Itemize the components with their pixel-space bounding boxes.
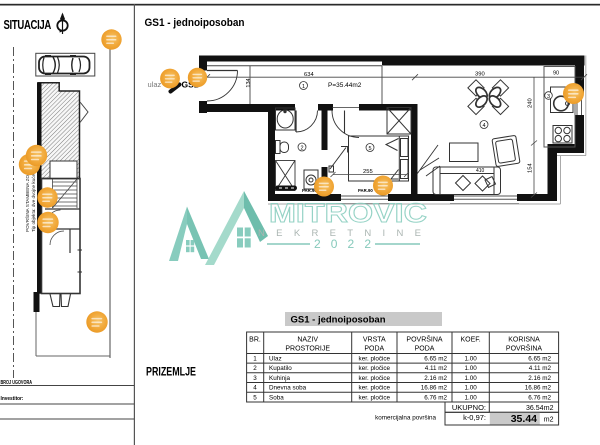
svg-text:Tip objekta: dve dvojne kuće: Tip objekta: dve dvojne kuće xyxy=(31,174,36,232)
svg-text:Kuhinja: Kuhinja xyxy=(269,375,291,382)
svg-text:MITROVIC: MITROVIC xyxy=(269,198,427,228)
svg-text:1.00: 1.00 xyxy=(464,385,477,392)
svg-text:1.00: 1.00 xyxy=(464,365,477,372)
svg-text:ker. pločice: ker. pločice xyxy=(359,375,391,382)
svg-text:1.00: 1.00 xyxy=(464,356,477,363)
svg-text:6.76 m2: 6.76 m2 xyxy=(528,394,551,401)
svg-text:m2: m2 xyxy=(544,417,554,424)
svg-text:POVRŠINA: POVRŠINA xyxy=(506,344,543,353)
svg-text:1: 1 xyxy=(253,356,257,363)
svg-text:GS1 - jednoiposoban: GS1 - jednoiposoban xyxy=(145,17,245,29)
svg-text:36.54: 36.54 xyxy=(526,405,544,412)
svg-text:POVRŠINA STAMBENA ZONA: POVRŠINA STAMBENA ZONA xyxy=(24,168,30,232)
svg-text:ker. pločice: ker. pločice xyxy=(359,385,391,392)
svg-text:2.16 m2: 2.16 m2 xyxy=(528,375,551,382)
svg-text:ker. pločice: ker. pločice xyxy=(359,356,391,363)
svg-text:ker. pločice: ker. pločice xyxy=(359,365,391,372)
svg-text:P=35.44m2: P=35.44m2 xyxy=(328,82,362,89)
svg-text:4: 4 xyxy=(482,123,485,129)
svg-text:4: 4 xyxy=(253,385,257,392)
svg-text:90: 90 xyxy=(553,71,559,77)
svg-text:Ulaz: Ulaz xyxy=(269,356,282,363)
svg-text:NAZIV: NAZIV xyxy=(297,337,318,344)
svg-text:634: 634 xyxy=(304,72,314,78)
svg-text:2: 2 xyxy=(253,365,257,372)
svg-text:6.65 m2: 6.65 m2 xyxy=(424,356,447,363)
svg-text:PAR.90: PAR.90 xyxy=(358,188,373,193)
svg-text:3: 3 xyxy=(547,94,550,100)
svg-text:1: 1 xyxy=(302,84,305,90)
svg-text:5: 5 xyxy=(253,394,257,401)
svg-text:5: 5 xyxy=(368,146,371,152)
svg-text:VRSTA: VRSTA xyxy=(363,337,386,344)
svg-text:2: 2 xyxy=(300,145,303,151)
svg-text:6.76 m2: 6.76 m2 xyxy=(424,394,447,401)
svg-text:240: 240 xyxy=(528,98,534,108)
svg-text:35.44: 35.44 xyxy=(511,413,537,425)
svg-text:PRIZEMLJE: PRIZEMLJE xyxy=(146,367,196,379)
svg-text:PODA: PODA xyxy=(415,346,435,353)
svg-text:4.11 m2: 4.11 m2 xyxy=(425,365,448,372)
svg-text:1.00: 1.00 xyxy=(464,394,477,401)
svg-text:255: 255 xyxy=(363,169,373,175)
svg-text:4.11 m2: 4.11 m2 xyxy=(529,365,552,372)
svg-text:16.86 m2: 16.86 m2 xyxy=(421,385,448,392)
svg-text:154: 154 xyxy=(528,163,534,173)
svg-text:Soba: Soba xyxy=(269,394,284,401)
svg-text:m2: m2 xyxy=(544,405,554,412)
svg-text:KORISNA: KORISNA xyxy=(508,337,540,344)
svg-text:GS1 - jednoiposoban: GS1 - jednoiposoban xyxy=(291,315,386,326)
svg-text:PROSTORIJE: PROSTORIJE xyxy=(285,346,330,353)
svg-text:BR.: BR. xyxy=(249,337,261,344)
svg-text:SITUACIJA: SITUACIJA xyxy=(4,18,52,32)
svg-text:UKUPNO:: UKUPNO: xyxy=(452,403,486,412)
svg-text:2.16 m2: 2.16 m2 xyxy=(424,375,447,382)
svg-text:Kupatilo: Kupatilo xyxy=(269,365,292,372)
svg-text:ulaz: ulaz xyxy=(148,80,162,89)
svg-text:PODA: PODA xyxy=(364,346,384,353)
svg-text:komercijalna površina: komercijalna površina xyxy=(375,415,436,422)
svg-text:1.00: 1.00 xyxy=(464,375,477,382)
svg-text:BROJ UGOVORA: BROJ UGOVORA xyxy=(1,380,33,386)
svg-text:3: 3 xyxy=(253,375,257,382)
svg-text:KOEF.: KOEF. xyxy=(460,337,480,344)
svg-text:Dnevna soba: Dnevna soba xyxy=(269,385,307,392)
svg-text:6.65 m2: 6.65 m2 xyxy=(528,356,551,363)
svg-text:Investitor:: Investitor: xyxy=(1,396,24,402)
svg-text:k-0,97:: k-0,97: xyxy=(463,413,486,422)
svg-text:16.86 m2: 16.86 m2 xyxy=(525,385,552,392)
svg-text:POVRŠINA: POVRŠINA xyxy=(406,335,443,344)
svg-text:410: 410 xyxy=(476,168,485,174)
svg-text:390: 390 xyxy=(475,72,485,78)
svg-text:134: 134 xyxy=(246,78,252,87)
svg-text:ker. pločice: ker. pločice xyxy=(359,394,391,401)
